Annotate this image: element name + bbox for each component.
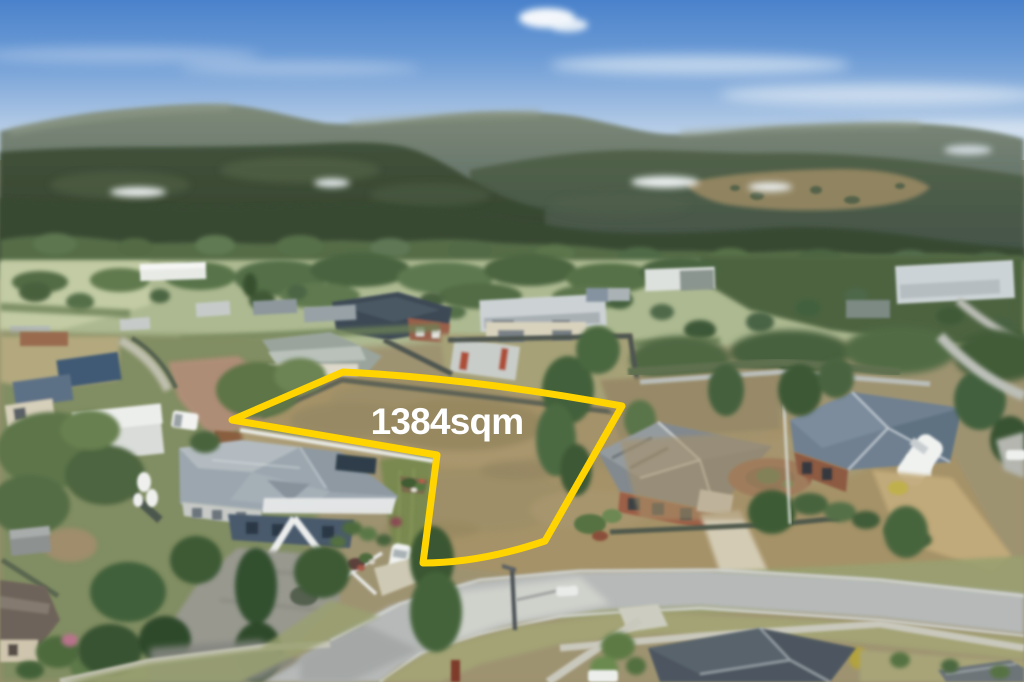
svg-text:1384sqm: 1384sqm xyxy=(371,401,524,442)
